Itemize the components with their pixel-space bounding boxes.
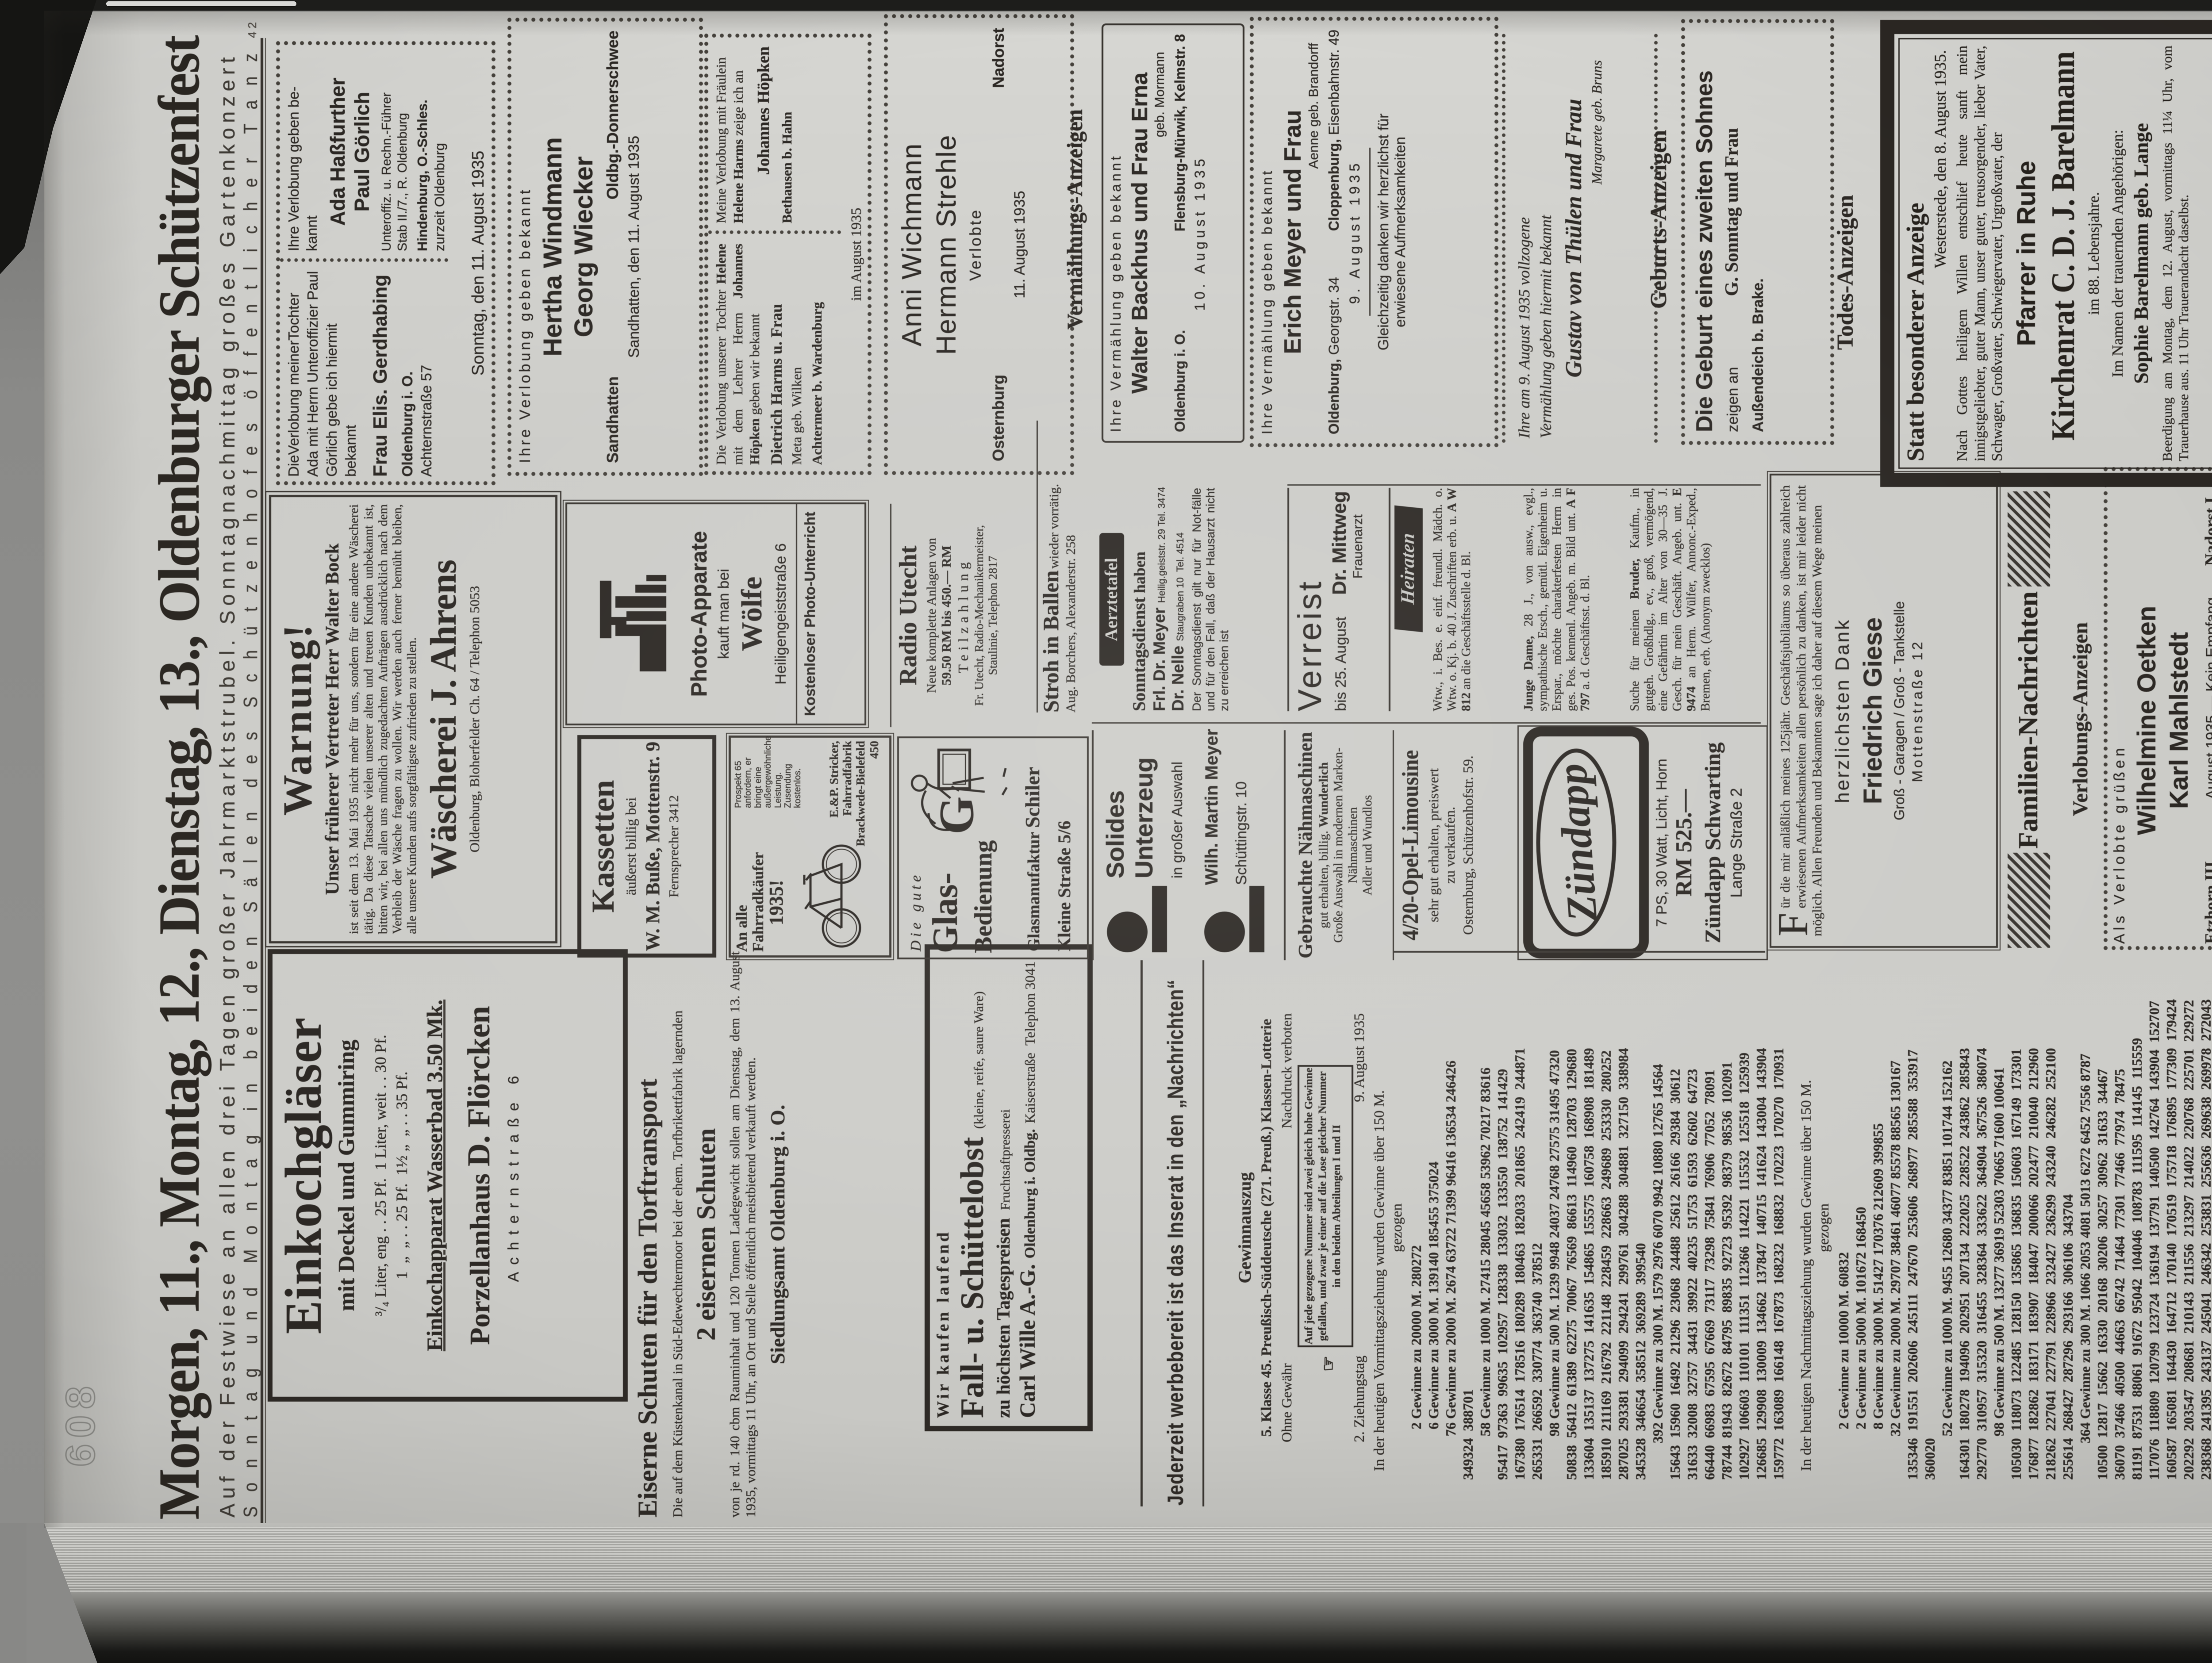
svg-text:Zündapp: Zündapp [1548,762,1606,923]
svg-text:G: G [929,796,984,835]
